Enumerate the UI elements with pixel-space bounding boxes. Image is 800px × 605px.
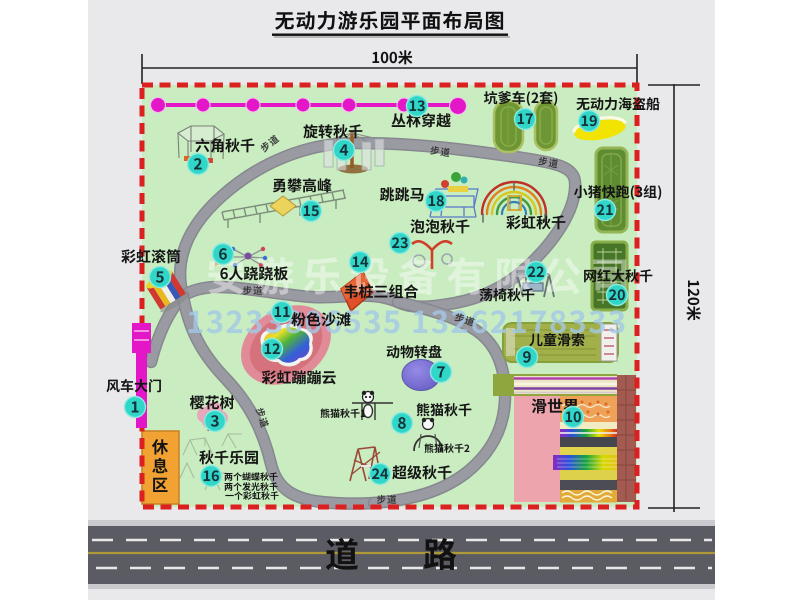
svg-text:1: 1 xyxy=(130,396,139,418)
svg-text:粉色沙滩: 粉色沙滩 xyxy=(291,309,351,330)
svg-text:韦桩三组合: 韦桩三组合 xyxy=(343,281,418,302)
svg-text:13: 13 xyxy=(408,95,425,116)
svg-text:路: 路 xyxy=(423,528,457,577)
svg-text:超级秋千: 超级秋千 xyxy=(392,462,452,483)
svg-text:21: 21 xyxy=(596,199,613,220)
svg-text:5: 5 xyxy=(155,266,164,288)
svg-text:动物转盘: 动物转盘 xyxy=(386,342,442,362)
svg-text:12: 12 xyxy=(263,338,280,359)
svg-text:9: 9 xyxy=(522,346,531,368)
svg-text:11: 11 xyxy=(273,301,290,322)
svg-text:六角秋千: 六角秋千 xyxy=(195,135,255,156)
svg-text:网红大秋千: 网红大秋千 xyxy=(583,266,653,286)
svg-text:彩虹蹦蹦云: 彩虹蹦蹦云 xyxy=(261,367,336,388)
svg-text:14: 14 xyxy=(351,251,369,272)
svg-text:熊猫秋千2: 熊猫秋千2 xyxy=(424,440,470,455)
svg-text:熊猫秋千: 熊猫秋千 xyxy=(416,400,472,420)
svg-text:小猪快跑(3组): 小猪快跑(3组) xyxy=(574,182,663,202)
svg-text:4: 4 xyxy=(339,139,348,161)
svg-text:17: 17 xyxy=(516,108,533,129)
svg-text:120米: 120米 xyxy=(683,279,704,321)
svg-text:7: 7 xyxy=(436,361,445,383)
svg-text:熊猫秋千1: 熊猫秋千1 xyxy=(320,405,366,420)
svg-text:100米: 100米 xyxy=(371,47,413,68)
svg-text:6人跷跷板: 6人跷跷板 xyxy=(220,263,289,284)
svg-text:16: 16 xyxy=(202,465,219,486)
svg-text:15: 15 xyxy=(302,200,319,221)
svg-text:3: 3 xyxy=(210,410,219,432)
svg-text:10: 10 xyxy=(564,406,581,427)
svg-text:18: 18 xyxy=(427,190,444,211)
svg-text:2: 2 xyxy=(193,153,202,175)
svg-text:彩虹秋千: 彩虹秋千 xyxy=(506,212,566,233)
svg-text:区: 区 xyxy=(152,472,169,496)
svg-text:勇攀高峰: 勇攀高峰 xyxy=(272,175,332,196)
svg-text:19: 19 xyxy=(580,110,597,131)
svg-text:步道: 步道 xyxy=(242,283,263,297)
svg-text:坑爹车(2套): 坑爹车(2套) xyxy=(484,88,559,108)
svg-text:一个彩虹秋千: 一个彩虹秋千 xyxy=(225,489,279,502)
svg-text:步道: 步道 xyxy=(376,492,397,506)
svg-text:6: 6 xyxy=(218,243,227,265)
svg-text:道: 道 xyxy=(325,528,359,577)
svg-text:步道: 步道 xyxy=(429,143,452,160)
svg-text:24: 24 xyxy=(371,463,389,484)
svg-text:8: 8 xyxy=(397,412,406,434)
svg-text:20: 20 xyxy=(608,284,625,305)
svg-text:荡椅秋千: 荡椅秋千 xyxy=(479,285,535,305)
svg-text:儿童滑索: 儿童滑索 xyxy=(529,330,585,350)
svg-text:23: 23 xyxy=(391,232,408,253)
svg-text:跳跳马: 跳跳马 xyxy=(379,184,424,205)
svg-text:彩虹滚筒: 彩虹滚筒 xyxy=(121,246,181,267)
svg-text:泡泡秋千: 泡泡秋千 xyxy=(410,216,470,237)
svg-text:无动力游乐园平面布局图: 无动力游乐园平面布局图 xyxy=(275,5,506,34)
svg-text:旋转秋千: 旋转秋千 xyxy=(303,121,363,142)
svg-text:风车大门: 风车大门 xyxy=(106,376,162,396)
svg-text:22: 22 xyxy=(527,261,544,282)
